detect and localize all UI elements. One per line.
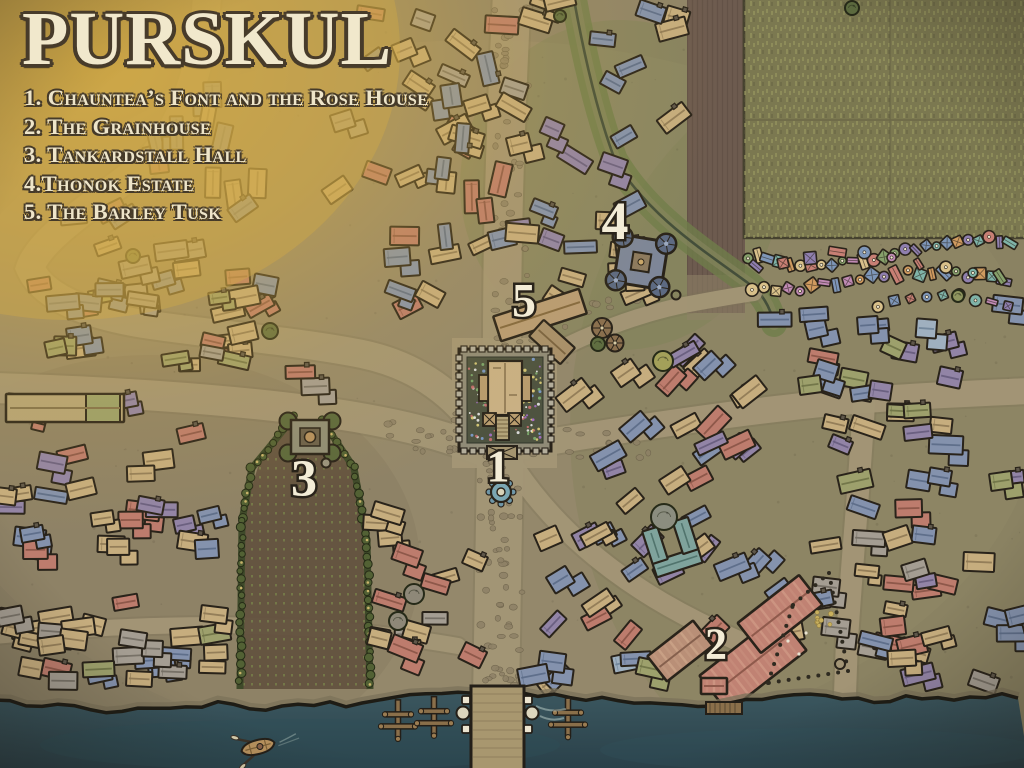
map-marker-2[interactable]: 2 <box>705 620 727 669</box>
map-marker-1[interactable]: 1 <box>487 441 510 492</box>
map-marker-3[interactable]: 3 <box>291 451 317 508</box>
purskul-town-map: 12345 PURSKUL 1. Chauntea’s Font and the… <box>0 0 1024 768</box>
vignette-overlay <box>0 0 1024 768</box>
map-marker-4[interactable]: 4 <box>602 191 629 251</box>
map-canvas: 12345 <box>0 0 1024 768</box>
map-marker-5[interactable]: 5 <box>512 275 536 328</box>
